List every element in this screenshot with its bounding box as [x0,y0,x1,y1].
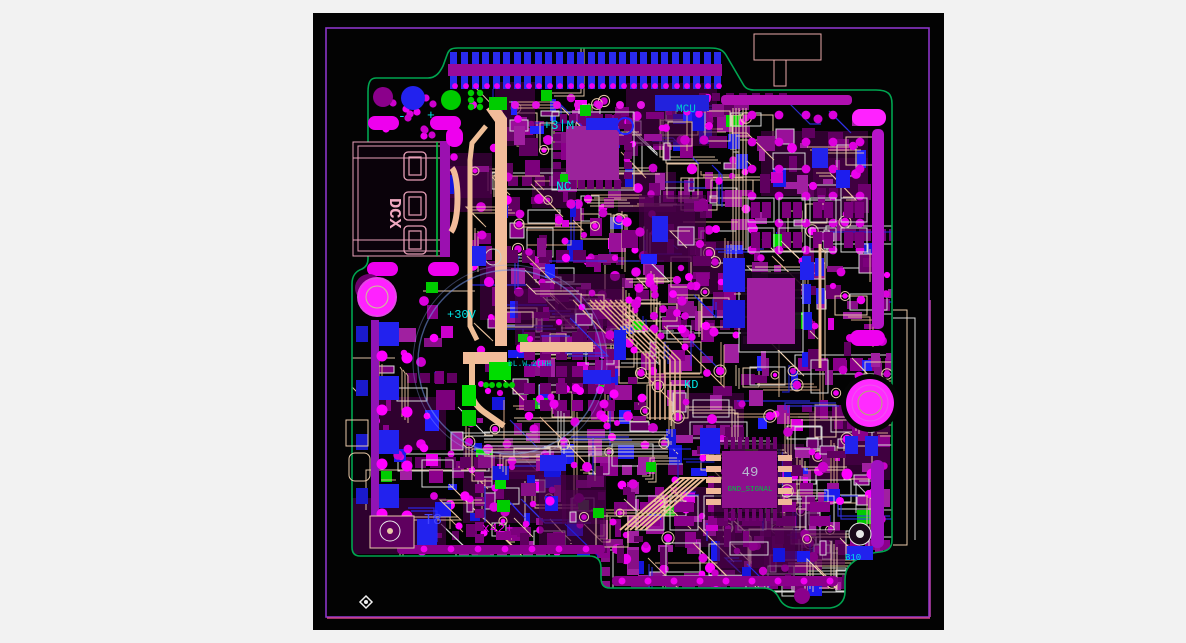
svg-text:GND_SIGNAL: GND_SIGNAL [727,486,773,494]
svg-text:MCU: MCU [676,104,696,116]
svg-text:-: - [398,109,406,124]
svg-text:49: 49 [742,465,759,481]
svg-text:+30V: +30V [447,308,477,322]
svg-text:T8: T8 [424,512,442,529]
svg-text:KD: KD [684,378,698,392]
svg-text:DCX: DCX [384,198,403,229]
svg-text:bL.W.2tHH: bL.W.2tHH [508,360,551,369]
svg-text:B10: B10 [845,553,861,563]
svg-text:+3|M: +3|M [543,118,574,133]
svg-text:x42+: x42+ [482,521,513,536]
